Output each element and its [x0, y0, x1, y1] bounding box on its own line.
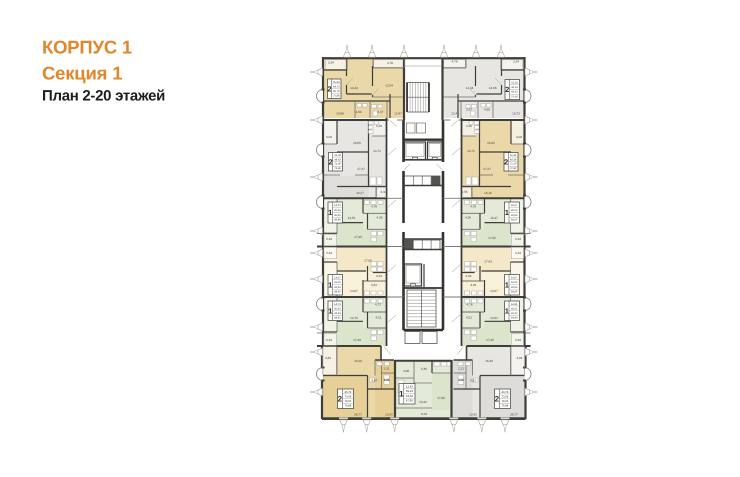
svg-text:12,54: 12,54 — [385, 84, 393, 88]
svg-text:36,77: 36,77 — [510, 412, 518, 416]
svg-text:42,93: 42,93 — [511, 286, 518, 289]
svg-text:13,42: 13,42 — [419, 400, 427, 404]
svg-text:16,27: 16,27 — [356, 191, 364, 195]
svg-text:55,94: 55,94 — [333, 81, 340, 84]
svg-text:4,03: 4,03 — [516, 135, 522, 139]
svg-text:5,85: 5,85 — [421, 367, 427, 371]
svg-text:4,03: 4,03 — [326, 135, 332, 139]
svg-text:71,40: 71,40 — [334, 163, 341, 166]
svg-text:4,84: 4,84 — [325, 356, 331, 360]
svg-text:1: 1 — [328, 306, 332, 315]
svg-text:40,78: 40,78 — [345, 391, 352, 394]
svg-text:1: 1 — [505, 306, 509, 315]
svg-text:4,34: 4,34 — [376, 274, 382, 278]
svg-text:40,78: 40,78 — [502, 391, 509, 394]
svg-text:12,34: 12,34 — [466, 86, 474, 90]
svg-text:69,62: 69,62 — [511, 91, 518, 94]
svg-text:3,34: 3,34 — [513, 60, 519, 64]
svg-text:14,71: 14,71 — [467, 149, 475, 153]
svg-text:22,34: 22,34 — [334, 154, 341, 157]
svg-text:4,36: 4,36 — [465, 216, 471, 220]
svg-text:2,31: 2,31 — [458, 367, 464, 371]
svg-text:13,42: 13,42 — [469, 412, 477, 416]
svg-text:73,09: 73,09 — [345, 395, 352, 398]
svg-text:3,34: 3,34 — [326, 237, 332, 241]
svg-text:45,45: 45,45 — [334, 307, 341, 310]
svg-text:14,55: 14,55 — [348, 216, 356, 220]
svg-text:44,65: 44,65 — [511, 291, 518, 294]
svg-text:16,05: 16,05 — [353, 141, 361, 145]
svg-text:14,79: 14,79 — [334, 303, 341, 306]
svg-text:78,06: 78,06 — [502, 400, 509, 403]
svg-text:4,78: 4,78 — [470, 205, 476, 209]
svg-text:3,34: 3,34 — [515, 237, 521, 241]
svg-text:16,39: 16,39 — [354, 359, 362, 363]
svg-text:2: 2 — [338, 395, 343, 404]
svg-text:78,06: 78,06 — [345, 400, 352, 403]
svg-text:4,78: 4,78 — [387, 61, 393, 65]
svg-text:14,55: 14,55 — [334, 204, 341, 207]
svg-text:17,45: 17,45 — [354, 235, 362, 239]
svg-text:44,99: 44,99 — [511, 316, 518, 319]
svg-text:76,88: 76,88 — [345, 404, 352, 407]
svg-text:72,32: 72,32 — [510, 167, 517, 170]
svg-text:4,72: 4,72 — [375, 303, 381, 307]
svg-text:44,81: 44,81 — [334, 316, 341, 319]
svg-text:12,47: 12,47 — [451, 112, 459, 116]
svg-text:16,39: 16,39 — [485, 359, 493, 363]
svg-text:69,78: 69,78 — [333, 90, 340, 93]
svg-text:12,47: 12,47 — [394, 112, 402, 116]
svg-text:41,06: 41,06 — [511, 281, 518, 284]
svg-text:3,34: 3,34 — [328, 61, 334, 65]
svg-text:1: 1 — [505, 208, 509, 217]
svg-text:13,44: 13,44 — [350, 86, 358, 90]
svg-text:44,70: 44,70 — [333, 85, 340, 88]
svg-text:14,67: 14,67 — [490, 289, 498, 293]
svg-text:16,86: 16,86 — [336, 112, 344, 116]
svg-text:2: 2 — [504, 157, 508, 166]
svg-text:43,14: 43,14 — [334, 312, 341, 315]
svg-text:1: 1 — [328, 280, 332, 289]
svg-text:76,88: 76,88 — [502, 404, 509, 407]
svg-text:1: 1 — [399, 390, 404, 399]
svg-text:14,91: 14,91 — [511, 303, 518, 306]
svg-text:49,39: 49,39 — [510, 158, 517, 161]
svg-text:План 2-20 этажей: План 2-20 этажей — [42, 88, 165, 105]
svg-text:43,34: 43,34 — [406, 394, 413, 398]
svg-text:2: 2 — [329, 157, 333, 166]
svg-text:17,65: 17,65 — [488, 236, 496, 240]
svg-text:2: 2 — [327, 85, 331, 94]
svg-text:2: 2 — [505, 85, 509, 94]
svg-text:41,06: 41,06 — [334, 281, 341, 284]
svg-text:45,65: 45,65 — [511, 307, 518, 310]
svg-text:3,34: 3,34 — [515, 338, 521, 342]
svg-text:4,60: 4,60 — [355, 110, 361, 114]
svg-text:47,65: 47,65 — [406, 399, 413, 403]
svg-text:4,78: 4,78 — [371, 205, 377, 209]
svg-text:2,31: 2,31 — [383, 367, 389, 371]
svg-text:44,65: 44,65 — [334, 291, 341, 294]
svg-text:46,54: 46,54 — [511, 86, 518, 89]
svg-text:14,67: 14,67 — [334, 276, 341, 279]
svg-text:71,46: 71,46 — [334, 167, 341, 170]
svg-text:3,16: 3,16 — [376, 124, 382, 128]
svg-text:4,78: 4,78 — [451, 60, 457, 64]
svg-text:3,34: 3,34 — [326, 251, 332, 255]
svg-text:3,34: 3,34 — [326, 338, 332, 342]
svg-text:13,42: 13,42 — [385, 412, 393, 416]
svg-text:14,79: 14,79 — [350, 316, 358, 320]
svg-text:42,93: 42,93 — [511, 214, 518, 217]
svg-text:14,67: 14,67 — [350, 289, 358, 293]
svg-text:42,93: 42,93 — [334, 286, 341, 289]
svg-text:19,67: 19,67 — [511, 204, 518, 207]
svg-text:3,34: 3,34 — [515, 251, 521, 255]
svg-text:36,77: 36,77 — [354, 412, 362, 416]
svg-text:1: 1 — [505, 280, 509, 289]
svg-text:3,28: 3,28 — [458, 378, 464, 382]
svg-text:22,41: 22,41 — [510, 154, 517, 157]
svg-text:4,60: 4,60 — [484, 108, 490, 112]
svg-text:18,73: 18,73 — [512, 112, 520, 116]
svg-text:14,67: 14,67 — [511, 276, 518, 279]
svg-text:4,36: 4,36 — [376, 216, 382, 220]
svg-text:4,34: 4,34 — [465, 274, 471, 278]
svg-text:17,43: 17,43 — [484, 260, 492, 264]
svg-text:3,28: 3,28 — [383, 378, 389, 382]
svg-text:8,23: 8,23 — [421, 412, 427, 416]
svg-text:17,27: 17,27 — [357, 167, 365, 171]
svg-text:1: 1 — [328, 208, 332, 217]
svg-text:52,58: 52,58 — [511, 81, 518, 84]
svg-text:14,71: 14,71 — [373, 149, 381, 153]
svg-text:45,06: 45,06 — [511, 209, 518, 212]
svg-text:4,81: 4,81 — [470, 283, 476, 287]
svg-text:3,57: 3,57 — [377, 110, 383, 114]
svg-text:9,67: 9,67 — [470, 379, 476, 383]
svg-text:17,08: 17,08 — [437, 396, 445, 400]
svg-text:17,27: 17,27 — [483, 167, 491, 171]
svg-text:17,66: 17,66 — [364, 259, 372, 263]
svg-text:4,51: 4,51 — [375, 316, 381, 320]
svg-text:71,20: 71,20 — [510, 163, 517, 166]
svg-text:4,51: 4,51 — [466, 316, 472, 320]
svg-text:45,85: 45,85 — [334, 214, 341, 217]
svg-text:13,66: 13,66 — [489, 86, 497, 90]
svg-text:12,49: 12,49 — [406, 384, 413, 388]
svg-text:4,08: 4,08 — [403, 369, 409, 373]
svg-text:75,88: 75,88 — [333, 94, 340, 97]
svg-text:Секция 1: Секция 1 — [42, 63, 122, 84]
svg-text:17,43: 17,43 — [353, 338, 361, 342]
svg-text:39,43: 39,43 — [406, 389, 413, 393]
svg-text:49,43: 49,43 — [334, 158, 341, 161]
svg-text:2: 2 — [495, 395, 500, 404]
svg-text:9,67: 9,67 — [371, 379, 377, 383]
svg-text:16,16: 16,16 — [484, 191, 492, 195]
svg-text:73,09: 73,09 — [502, 395, 509, 398]
svg-text:49,98: 49,98 — [334, 219, 341, 222]
svg-text:3,16: 3,16 — [466, 124, 472, 128]
svg-text:75,60: 75,60 — [511, 95, 518, 98]
svg-text:4,84: 4,84 — [516, 356, 522, 360]
svg-text:16,47: 16,47 — [490, 216, 498, 220]
svg-text:16,05: 16,05 — [487, 141, 495, 145]
svg-text:44,65: 44,65 — [511, 219, 518, 222]
svg-text:4,81: 4,81 — [371, 283, 377, 287]
svg-text:КОРПУС 1: КОРПУС 1 — [42, 37, 132, 58]
svg-text:3,57: 3,57 — [466, 108, 472, 112]
svg-text:14,91: 14,91 — [490, 316, 498, 320]
svg-text:4,78: 4,78 — [466, 303, 472, 307]
svg-text:45,36: 45,36 — [334, 209, 341, 212]
svg-text:17,45: 17,45 — [486, 338, 494, 342]
svg-text:43,32: 43,32 — [511, 312, 518, 315]
